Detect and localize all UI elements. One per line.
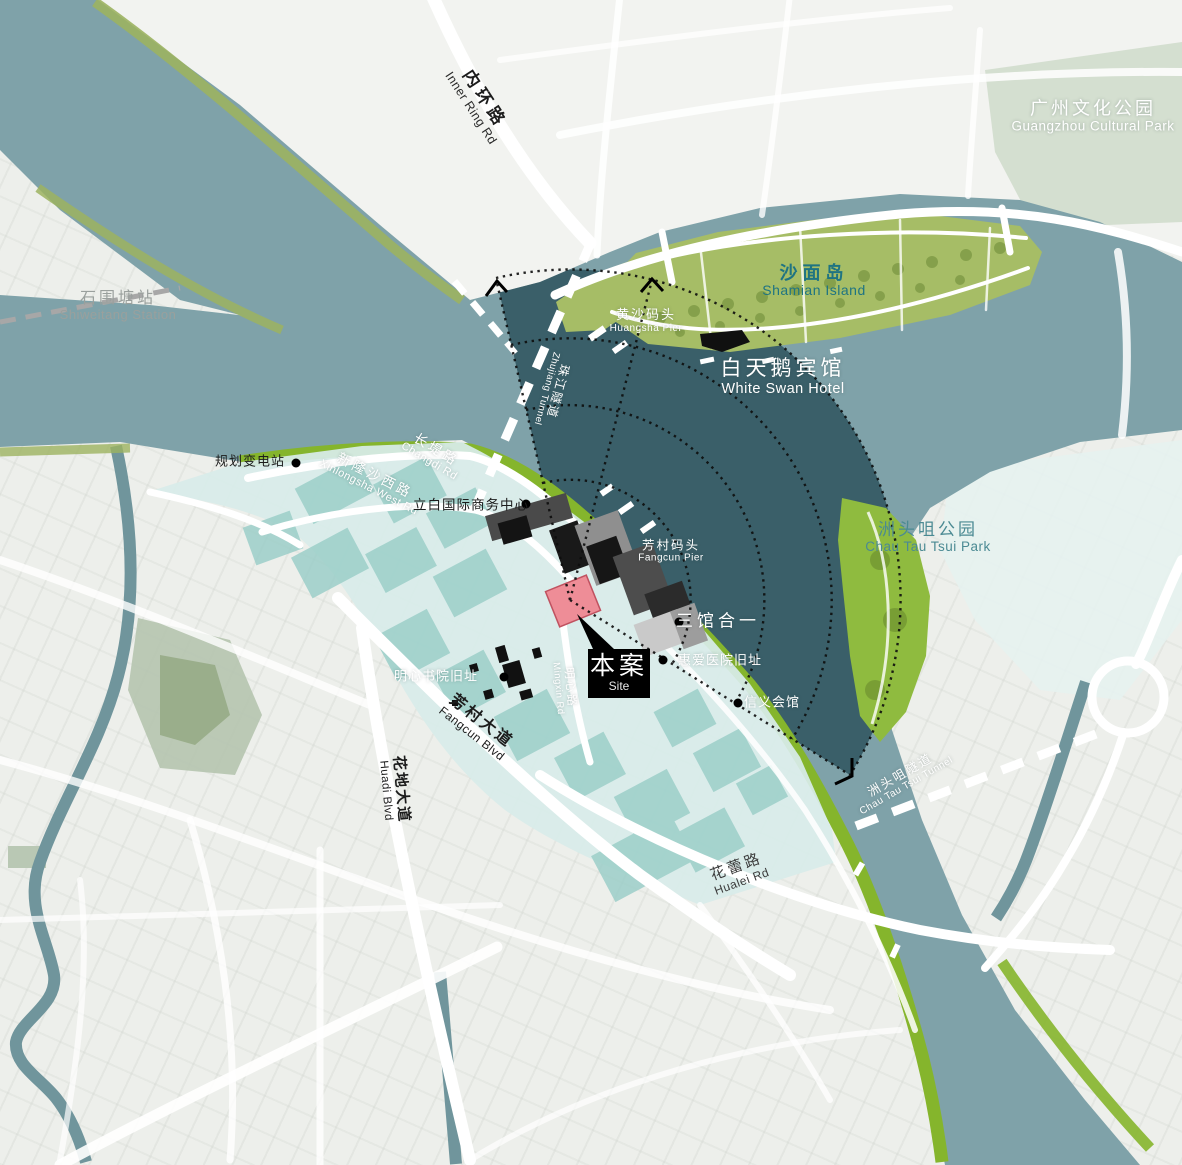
poi-dot-substation	[292, 459, 301, 468]
map-canvas	[0, 0, 1182, 1165]
canal-east	[996, 682, 1086, 918]
canal-west	[16, 446, 131, 1162]
site-callout-box: 本案 Site	[588, 649, 650, 698]
poi-dot-mingxin-academy	[500, 673, 509, 682]
poi-dot-huiai	[659, 656, 668, 665]
poi-dot-liby	[522, 500, 531, 509]
poi-dot-three-museums	[675, 618, 684, 627]
poi-dot-xinyi	[734, 699, 743, 708]
site-analysis-map: 内环路 Inner Ring Rd 广州文化公园 Guangzhou Cultu…	[0, 0, 1182, 1165]
